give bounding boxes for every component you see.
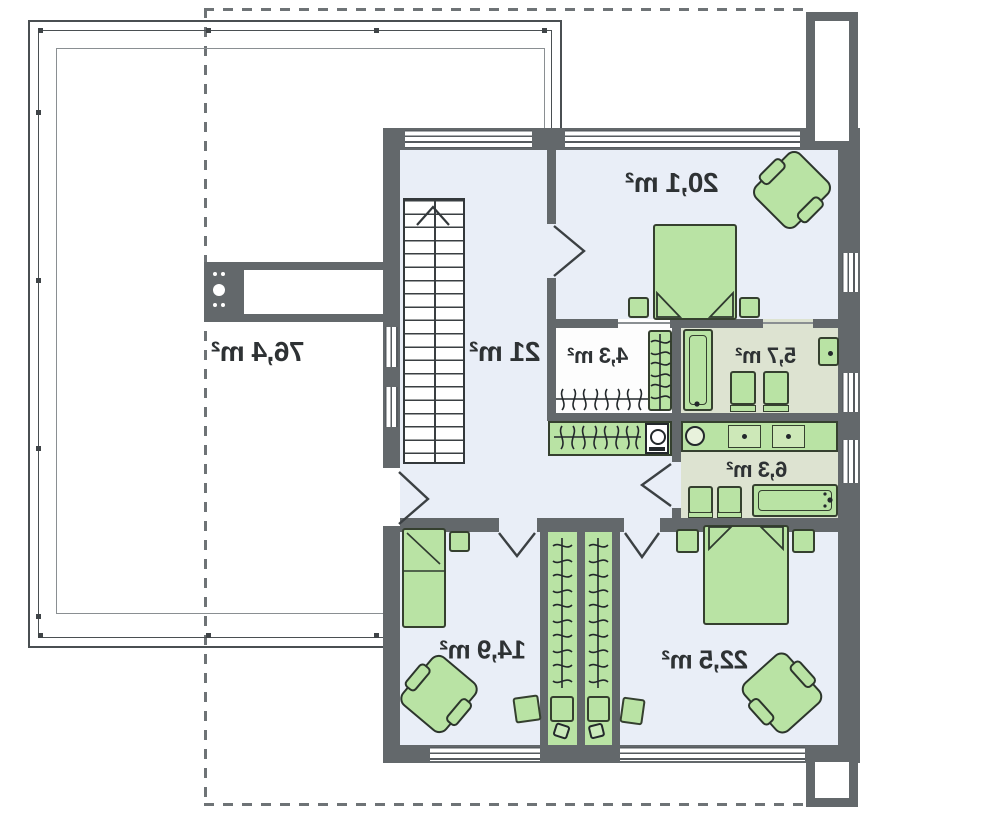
window: [842, 253, 858, 292]
room-label-wardrobe: 4,3 m²: [568, 343, 629, 369]
bathtub-basin: [758, 490, 832, 511]
chimney-vent-dot: [213, 272, 217, 276]
round-sink: [685, 426, 705, 446]
wardrobe-cabinet: [648, 330, 672, 411]
toilet: [730, 371, 756, 405]
sink-basin: [728, 425, 761, 448]
nightstand: [676, 529, 699, 553]
door-opening-bathroom-lower: [672, 462, 681, 508]
toilet-cistern: [717, 512, 742, 518]
window: [430, 747, 540, 761]
door-lintel: [618, 322, 670, 324]
room-label-bedroom-right: 22,5 m²: [662, 645, 748, 676]
chimney-bottom-right: [806, 753, 858, 807]
staircase: [403, 198, 465, 464]
toilet: [717, 486, 742, 514]
staircase-divider: [434, 200, 436, 462]
dressing-table: [550, 696, 574, 722]
nightstand: [792, 529, 815, 553]
chimney-vent-dot: [221, 272, 225, 276]
washing-machine-drum: [650, 429, 666, 445]
terrace-railing-posts-left: [36, 110, 41, 630]
room-label-bathroom-lower: 6,3 m²: [727, 457, 788, 483]
chimney-vent-dot: [221, 303, 225, 307]
door-lintel: [763, 322, 813, 324]
nightstand: [628, 297, 649, 318]
window: [842, 373, 858, 412]
floor-plan-canvas: 76,4 m² 21 m² 20,1 m² 4,3 m² 5,7 m² 6,3 …: [0, 0, 1000, 822]
chimney-flue-circle: [213, 284, 225, 296]
bathtub: [683, 329, 713, 411]
window: [842, 440, 858, 483]
toilet: [688, 486, 713, 514]
washing-machine: [645, 423, 669, 454]
chimney-vent-dot: [213, 303, 217, 307]
window: [565, 130, 800, 148]
bathtub: [752, 484, 838, 517]
chimney-top-right: [806, 12, 858, 150]
toilet-cistern: [688, 512, 713, 518]
toilet-cistern: [730, 405, 756, 412]
room-label-bedroom-top: 20,1 m²: [626, 167, 719, 199]
stool: [619, 697, 645, 726]
bidet-base: [763, 405, 789, 412]
double-bed: [703, 525, 789, 625]
room-label-bathroom-upper: 5,7 m²: [736, 343, 797, 369]
window: [405, 130, 532, 148]
door-opening-bedroom-top: [547, 224, 556, 278]
door-opening-bedroom-left: [499, 518, 537, 532]
room-label-terrace: 76,4 m²: [212, 336, 305, 368]
sink-basin: [772, 425, 805, 448]
washbasin: [818, 337, 839, 366]
double-bed: [653, 224, 737, 320]
dressing-table: [587, 696, 610, 722]
room-label-bedroom-left: 14,9 m²: [440, 635, 526, 666]
single-bed: [402, 528, 446, 628]
stool: [512, 694, 541, 723]
window: [385, 387, 398, 427]
terrace-railing-posts-top: [38, 28, 552, 33]
nightstand: [739, 297, 760, 318]
roof-dashed-line-top: [204, 8, 808, 11]
door-opening-bedroom-right: [624, 518, 660, 532]
bathtub-basin: [689, 335, 707, 405]
window: [620, 747, 805, 761]
washing-machine-panel: [649, 447, 665, 451]
bedside-table: [449, 531, 470, 552]
roof-dashed-line-bottom: [204, 803, 808, 806]
door-opening-terrace: [383, 468, 400, 526]
room-label-hall: 21 m²: [470, 336, 541, 368]
bidet: [763, 371, 789, 405]
window: [385, 327, 398, 367]
